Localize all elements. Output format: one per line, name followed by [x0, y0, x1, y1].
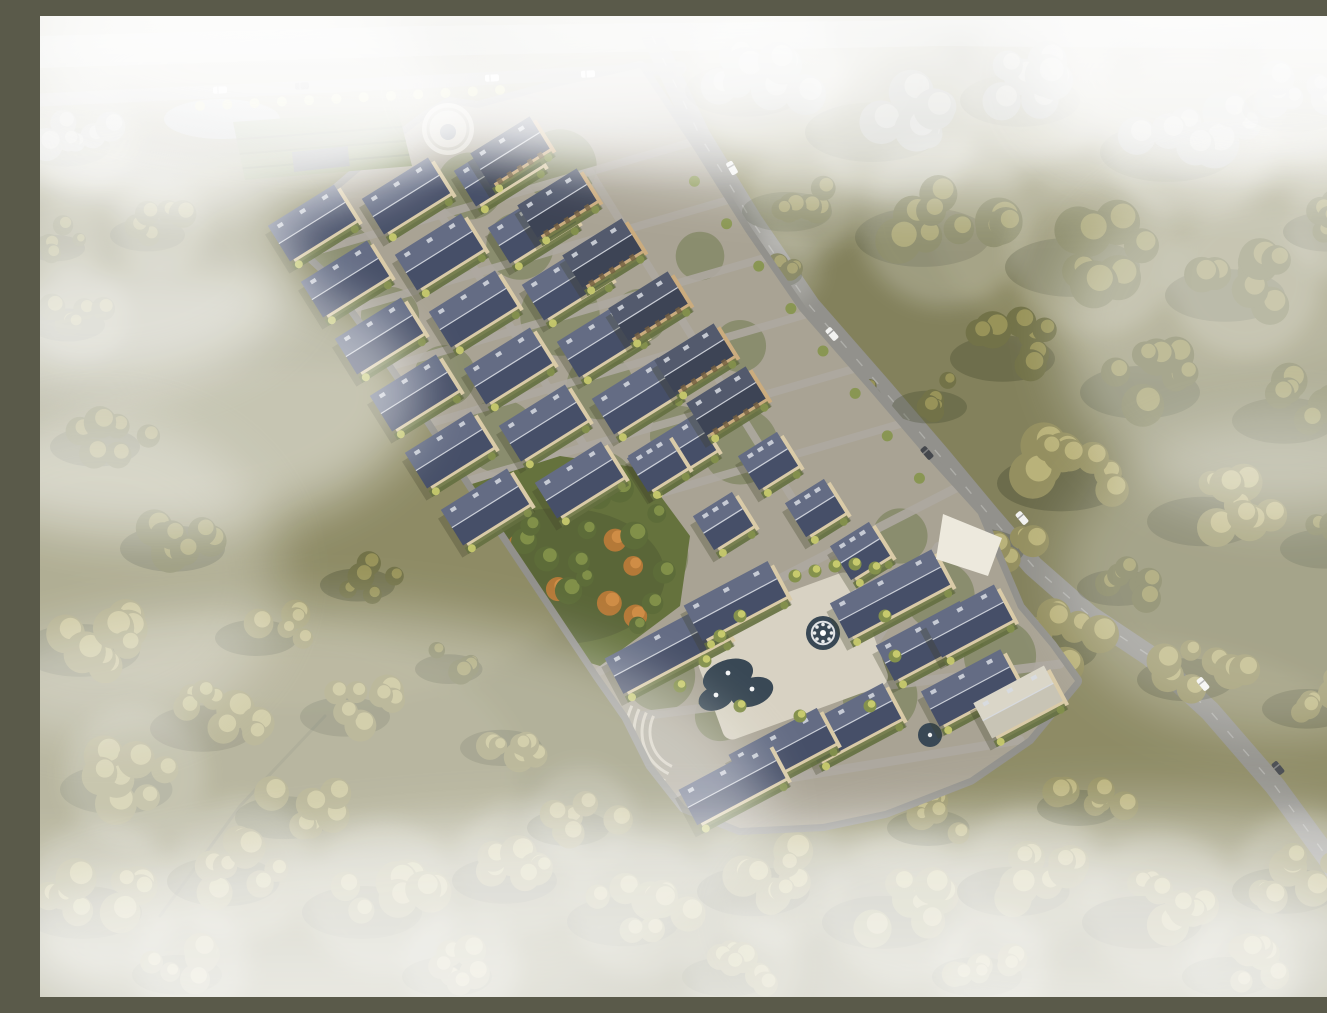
rendering-canvas	[40, 16, 1327, 997]
aerial-rendering: Residential community master plan — aeri…	[40, 16, 1327, 997]
fog-layer	[40, 16, 1327, 997]
